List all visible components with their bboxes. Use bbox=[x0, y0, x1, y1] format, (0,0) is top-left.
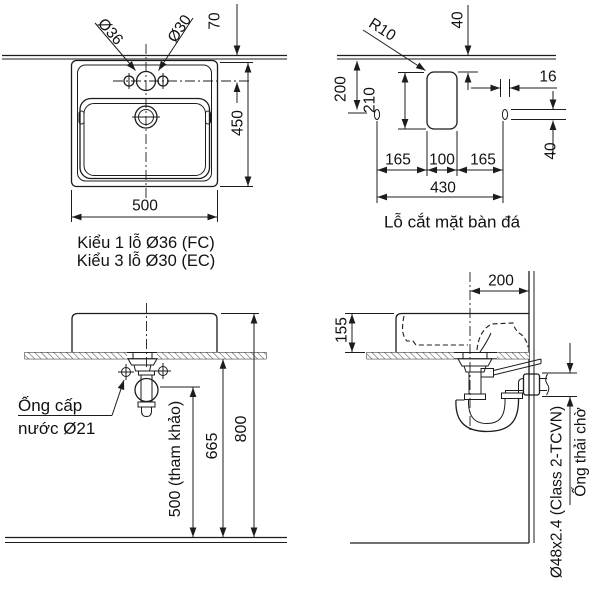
label-drain-spec: Ø48x2.4 (Class 2-TCVN) bbox=[549, 406, 565, 578]
dim-label-200-cutout: 200 bbox=[333, 76, 349, 102]
dim-label-70: 70 bbox=[207, 12, 223, 29]
dim-label-665: 665 bbox=[205, 433, 221, 460]
caption-top-view-1: Kiểu 1 lỗ Ø36 (FC) bbox=[77, 235, 215, 252]
dim-label-430: 430 bbox=[430, 180, 456, 196]
dim-label-450: 450 bbox=[230, 110, 246, 136]
dim-label-155: 155 bbox=[334, 317, 350, 343]
dim-label-210: 210 bbox=[362, 87, 378, 113]
technical-drawing: Ø36 Ø30 70 450 500 Kiểu 1 lỗ Ø36 (FC) Ki… bbox=[0, 0, 600, 594]
label-supply-pipe-1: Ống cấp bbox=[18, 397, 82, 414]
dim-label-16: 16 bbox=[539, 69, 556, 85]
dim-label-40-top: 40 bbox=[450, 11, 466, 28]
dim-label-100: 100 bbox=[429, 152, 455, 168]
caption-cutout: Lỗ cắt mặt bàn đá bbox=[384, 214, 520, 231]
dim-label-800: 800 bbox=[234, 416, 250, 443]
dim-label-165-left: 165 bbox=[385, 152, 411, 168]
side-view-linework bbox=[345, 271, 577, 543]
drawing-canvas bbox=[0, 0, 600, 594]
dim-label-40-slot: 40 bbox=[543, 142, 559, 159]
dim-label-165-right: 165 bbox=[470, 152, 496, 168]
caption-top-view-2: Kiểu 3 lỗ Ø30 (EC) bbox=[77, 253, 215, 270]
label-drain-name: Ống thải chờ bbox=[573, 407, 589, 496]
dim-label-500: 500 bbox=[132, 198, 158, 214]
dim-label-200-wall: 200 bbox=[488, 273, 514, 289]
dim-label-500-ref: 500 (tham khảo) bbox=[168, 401, 184, 518]
label-supply-pipe-2: nước Ø21 bbox=[18, 420, 95, 437]
